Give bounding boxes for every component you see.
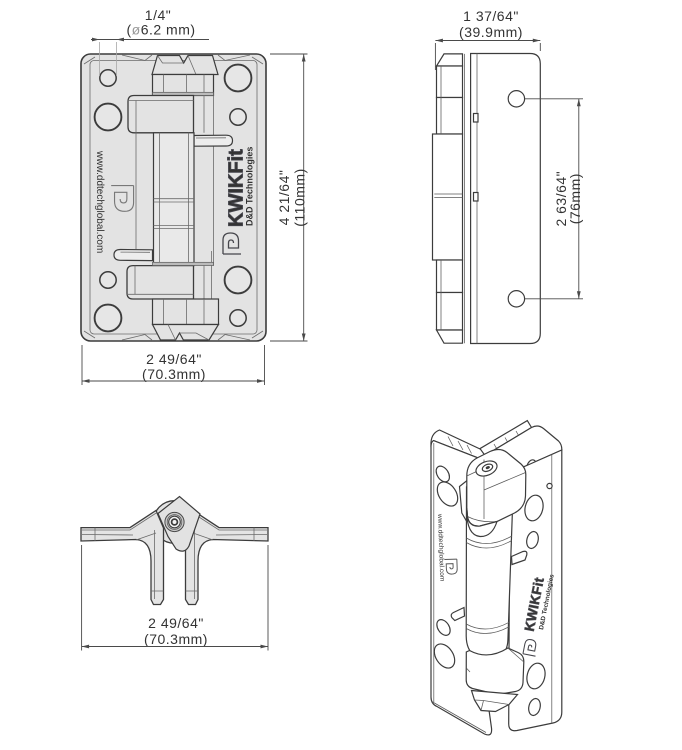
svg-text:(39.9mm): (39.9mm) (459, 24, 523, 40)
svg-text:(70.3mm): (70.3mm) (144, 631, 208, 647)
svg-text:D&D Technologies: D&D Technologies (245, 147, 255, 226)
svg-text:4 21/64": 4 21/64" (276, 170, 292, 226)
svg-text:2 49/64": 2 49/64" (146, 351, 202, 367)
svg-text:(70.3mm): (70.3mm) (142, 366, 206, 382)
svg-text:www.ddtechglobal.com: www.ddtechglobal.com (94, 150, 105, 253)
svg-text:(ø6.2 mm): (ø6.2 mm) (126, 22, 195, 38)
svg-text:2 49/64": 2 49/64" (148, 615, 204, 631)
svg-text:(76mm): (76mm) (567, 173, 583, 224)
svg-text:(110mm): (110mm) (292, 168, 308, 226)
svg-text:1 37/64": 1 37/64" (463, 8, 519, 24)
